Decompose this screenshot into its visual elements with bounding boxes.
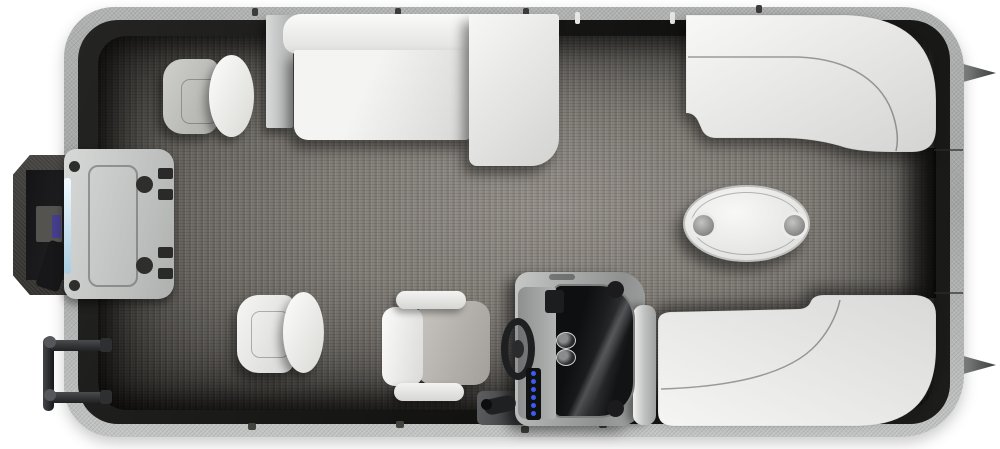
cup-holder	[781, 212, 808, 239]
switch-led	[531, 379, 536, 384]
pod-access-hatch	[88, 165, 138, 287]
captain-chair-backrest	[382, 307, 423, 386]
pod-drain-hole	[136, 257, 153, 274]
pod-hinge	[158, 168, 173, 179]
pod-drain-hole	[136, 176, 153, 193]
starboard-chair-backrest	[283, 292, 324, 373]
outboard-motor-accent	[52, 215, 61, 238]
pod-bolt-hole	[69, 280, 80, 291]
ladder-clamp	[100, 338, 112, 352]
port-bench-armrest	[469, 14, 559, 166]
ladder-knob	[44, 389, 56, 401]
steering-wheel-hub	[512, 340, 524, 358]
pontoon-floorplan-render	[0, 0, 1000, 449]
switch-led	[531, 403, 536, 408]
bow-gate-seam-bottom	[934, 292, 963, 294]
pod-hinge	[158, 189, 173, 200]
captain-chair-seat	[417, 301, 490, 385]
rail-fitting	[396, 421, 404, 428]
console-speaker	[607, 281, 624, 298]
cup-holder	[690, 212, 717, 239]
ladder-clamp	[100, 390, 112, 404]
bow-gate-seam-top	[934, 149, 963, 151]
switch-led	[531, 371, 536, 376]
console-vent	[549, 274, 575, 280]
ladder-knob	[44, 336, 56, 348]
captain-chair-armrest-starboard	[394, 383, 464, 401]
pod-bolt-hole	[69, 161, 80, 172]
side-gate-hinge	[575, 12, 580, 24]
pod-hinge	[158, 247, 173, 258]
console-speaker	[607, 400, 624, 417]
rail-fitting	[756, 5, 762, 13]
rail-fitting	[252, 8, 258, 16]
aft-port-chair-backrest	[209, 55, 254, 137]
helm-gauge	[556, 349, 576, 366]
pod-hinge	[158, 268, 173, 279]
captain-chair-armrest-port	[396, 291, 466, 309]
throttle-knob	[481, 399, 492, 410]
bow-gate	[896, 148, 936, 298]
switch-led	[531, 387, 536, 392]
rail-fitting	[248, 423, 256, 430]
pod-panel-edge-highlight	[64, 178, 71, 274]
switch-led	[531, 411, 536, 416]
switch-led	[531, 395, 536, 400]
grab-rail	[633, 305, 656, 425]
helm-display	[545, 290, 564, 313]
side-gate-hinge	[670, 12, 675, 24]
helm-gauge	[556, 332, 576, 349]
rail-fitting	[521, 426, 529, 433]
port-bench-seat	[294, 50, 473, 140]
